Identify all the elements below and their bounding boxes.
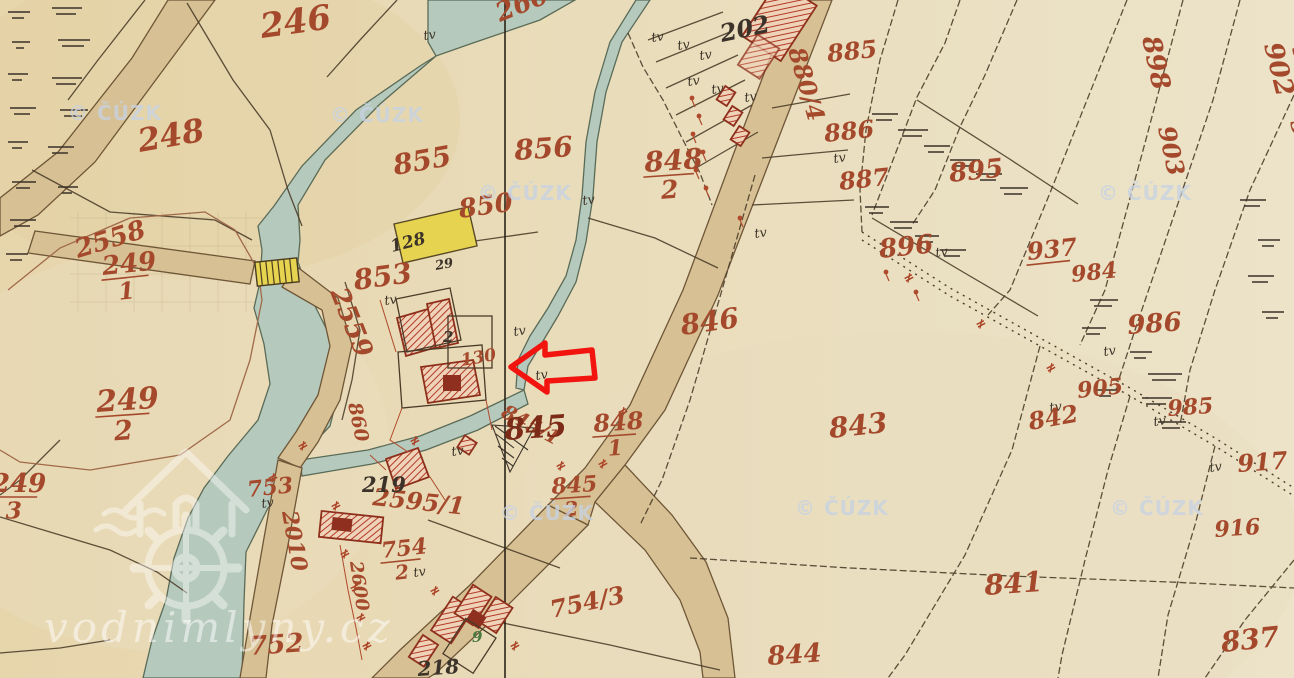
parcel-label-841: 841 [982, 565, 1044, 602]
parcel-label-937: 937 [1024, 232, 1079, 266]
svg-text:219: 219 [361, 472, 406, 497]
parcel-label-896: 896 [877, 229, 935, 265]
svg-text:848: 848 [591, 406, 644, 439]
cadastral-map-canvas: tvtvtvtvtvtvtvtvtvtvtvtvtvtvtvtvtvtvtvtv… [0, 0, 1294, 678]
watermark-site-text: vodnimlyny.cz [44, 603, 394, 652]
parcel-label-753: 753 [246, 472, 294, 503]
svg-text:905: 905 [1076, 373, 1124, 404]
svg-text:218: 218 [416, 654, 460, 678]
svg-text:843: 843 [826, 406, 889, 445]
cuzk-watermark-text: © ČÚZK [500, 501, 594, 525]
cuzk-watermark-text: © ČÚZK [478, 181, 572, 205]
svg-text:937: 937 [1026, 232, 1079, 266]
svg-text:841: 841 [982, 565, 1044, 602]
cuzk-watermark-text: © ČÚZK [68, 101, 162, 125]
svg-text:986: 986 [1126, 307, 1182, 341]
svg-text:753: 753 [246, 472, 294, 503]
svg-text:985: 985 [1167, 393, 1215, 422]
svg-text:2: 2 [393, 559, 410, 584]
svg-text:9: 9 [472, 628, 483, 646]
parcel-label-2: 2 [442, 328, 453, 346]
parcel-label-917: 917 [1236, 446, 1288, 478]
svg-text:837: 837 [1218, 620, 1281, 659]
parcel-label-218: 218 [416, 654, 460, 678]
parcel-label-856: 856 [512, 130, 574, 167]
parcel-label-895: 895 [947, 153, 1005, 189]
parcel-label-984: 984 [1070, 257, 1118, 288]
parcel-label-986: 986 [1126, 307, 1182, 341]
svg-text:916: 916 [1214, 514, 1262, 543]
parcel-label-843: 843 [826, 406, 889, 445]
svg-text:887: 887 [837, 162, 891, 196]
parcel-label-985: 985 [1167, 393, 1215, 422]
parcel-label-837: 837 [1218, 620, 1281, 659]
cuzk-watermark-text: © ČÚZK [1110, 496, 1204, 520]
svg-text:896: 896 [877, 229, 935, 265]
cuzk-watermark-text: © ČÚZK [795, 496, 889, 520]
cuzk-watermark-text: © ČÚZK [1098, 181, 1192, 205]
parcel-label-885: 885 [825, 34, 879, 68]
svg-text:845: 845 [502, 409, 568, 448]
cuzk-watermark-text: © ČÚZK [330, 103, 424, 127]
svg-text:984: 984 [1070, 257, 1118, 288]
svg-text:885: 885 [825, 34, 879, 68]
svg-text:1: 1 [117, 276, 136, 306]
parcel-label-9: 9 [472, 628, 483, 646]
svg-text:886: 886 [822, 114, 876, 148]
parcel-label-905: 905 [1076, 373, 1124, 404]
svg-text:2: 2 [659, 174, 680, 205]
svg-text:856: 856 [512, 130, 574, 167]
map-image: tvtvtvtvtvtvtvtvtvtvtvtvtvtvtvtvtvtvtvtv… [0, 0, 1294, 678]
svg-text:844: 844 [765, 638, 822, 672]
parcel-label-845: 845 [502, 409, 568, 448]
parcel-label-887: 887 [837, 162, 891, 196]
parcel-label-916: 916 [1214, 514, 1262, 543]
yellow-bridge [255, 258, 299, 286]
svg-text:3: 3 [6, 496, 22, 524]
parcel-label-219: 219 [361, 472, 406, 497]
svg-text:917: 917 [1236, 446, 1288, 478]
svg-text:1: 1 [607, 436, 624, 462]
svg-text:249: 249 [0, 469, 46, 499]
svg-text:2: 2 [442, 328, 453, 346]
svg-text:2: 2 [112, 415, 134, 447]
parcel-label-844: 844 [765, 638, 822, 672]
svg-text:895: 895 [947, 153, 1005, 189]
parcel-label-886: 886 [822, 114, 876, 148]
